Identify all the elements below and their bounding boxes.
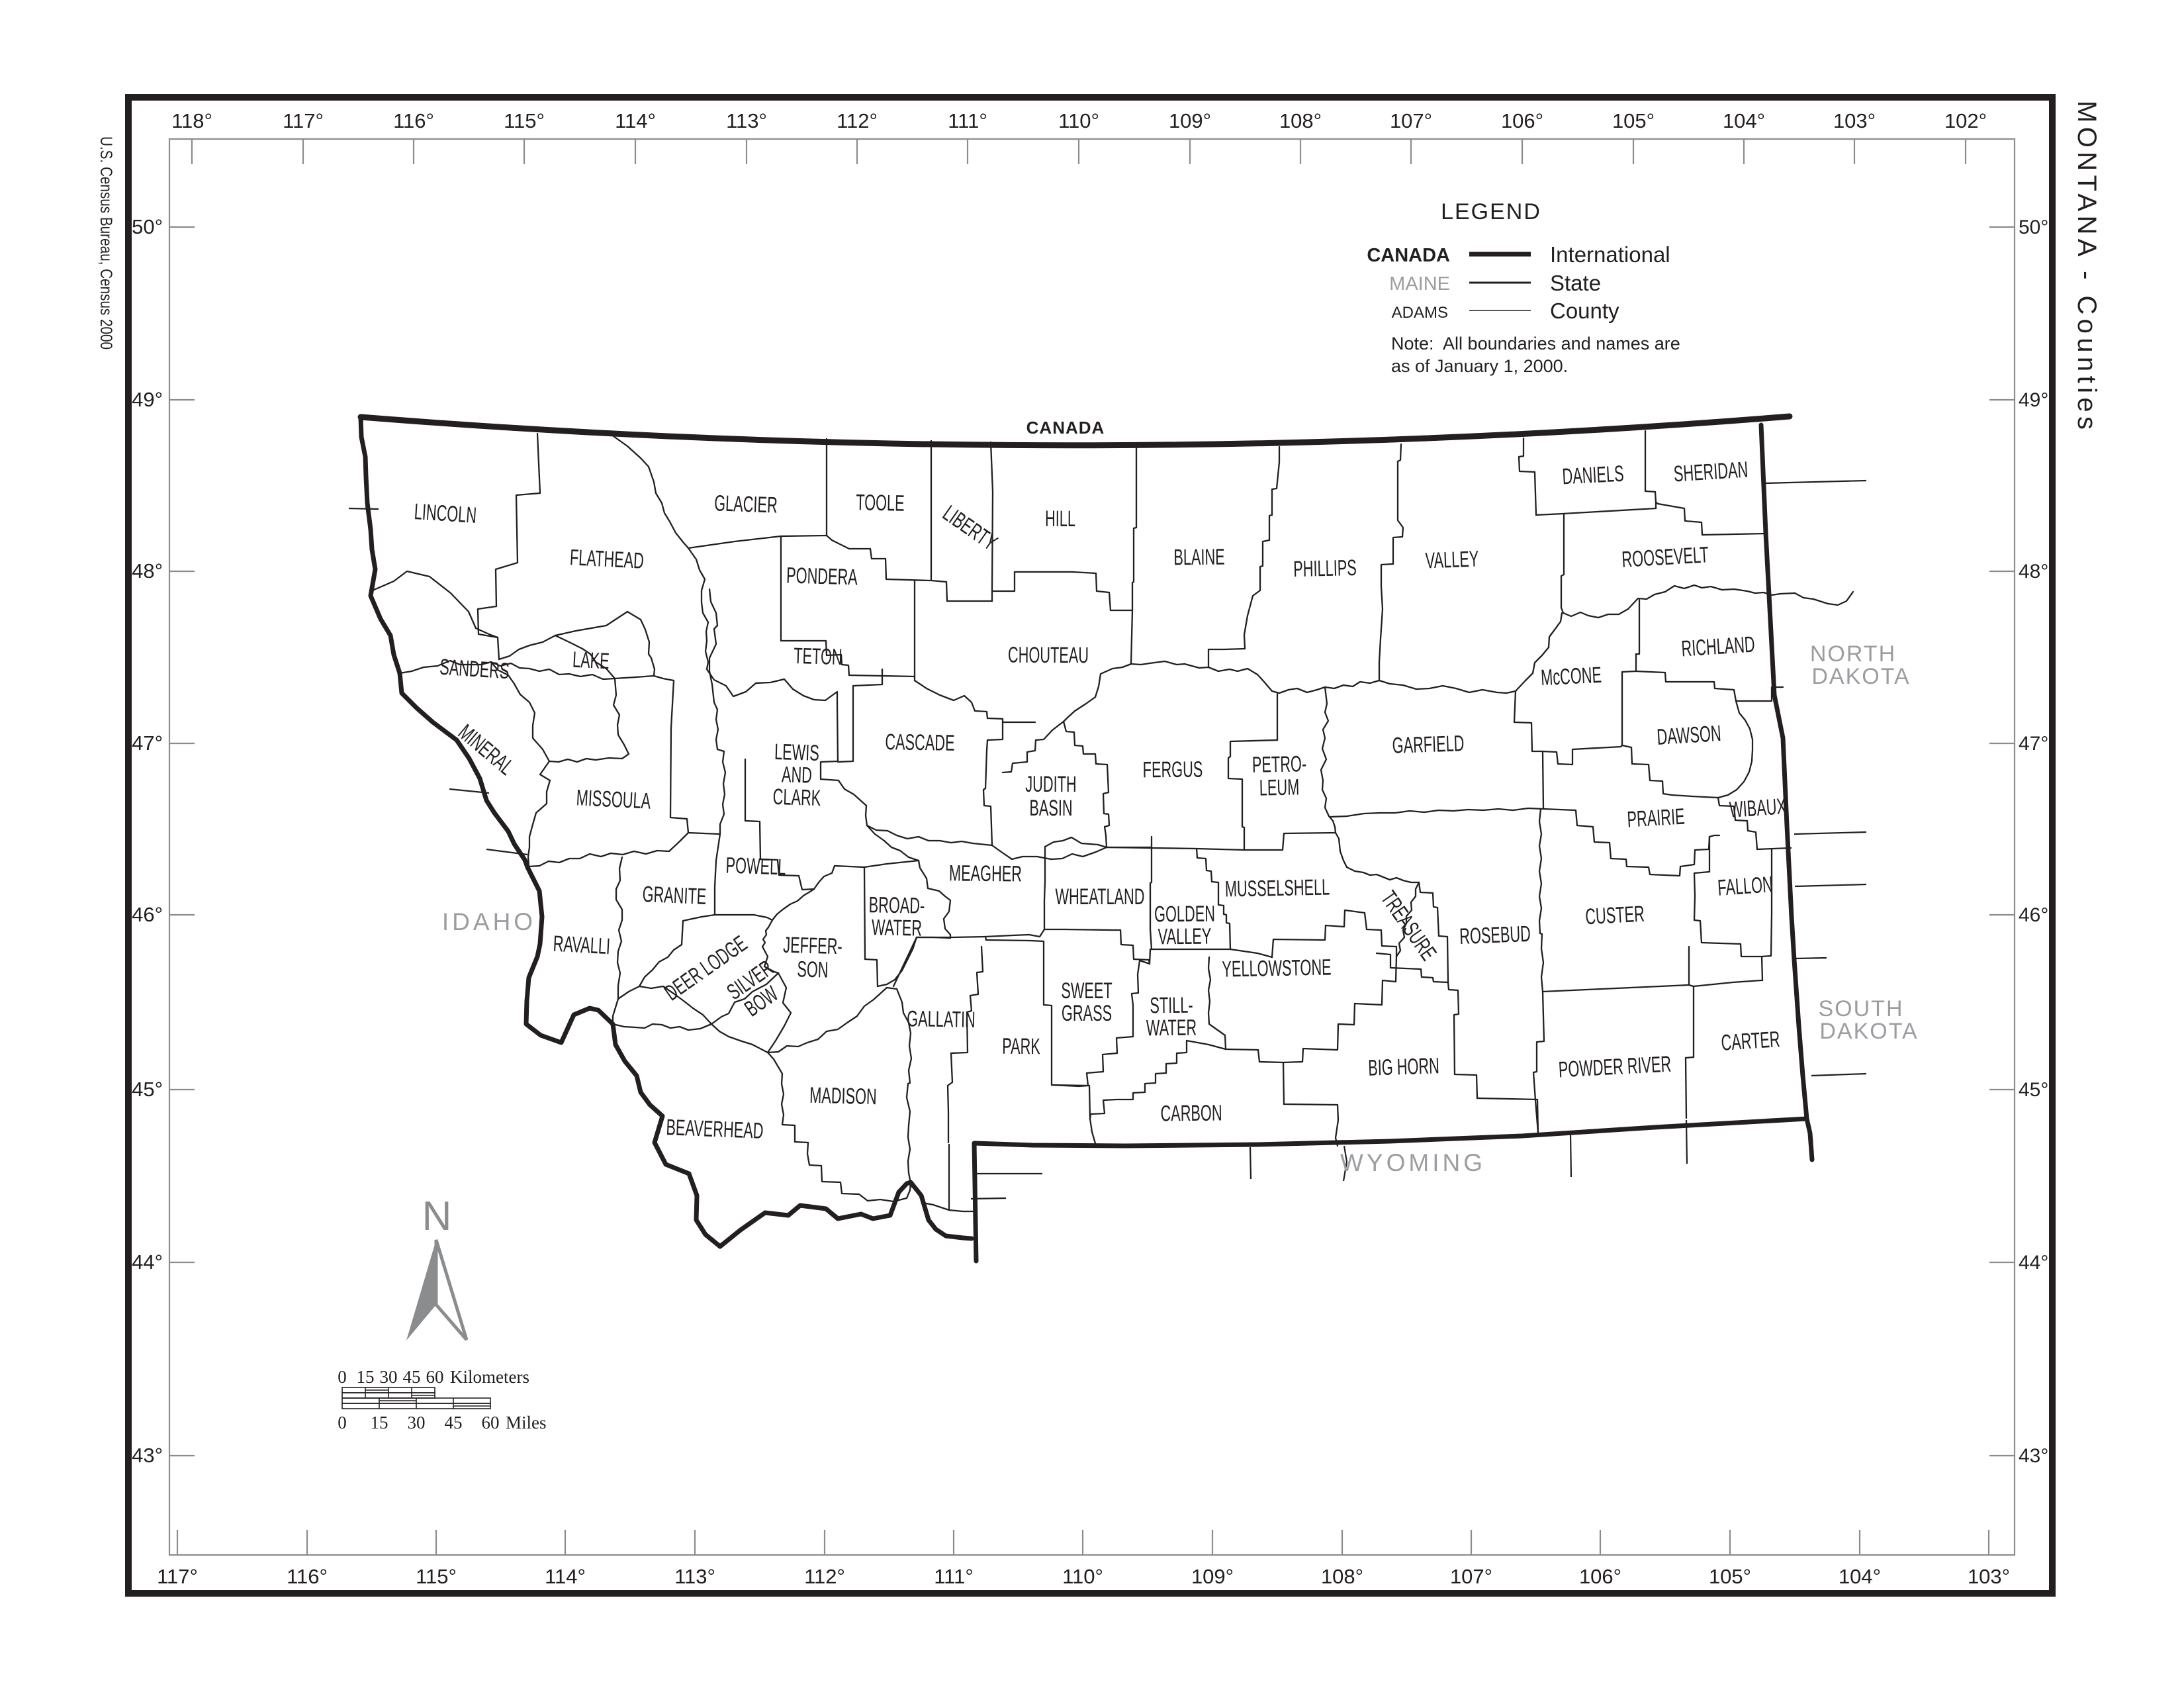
- svg-text:WIBAUX: WIBAUX: [1729, 794, 1787, 823]
- svg-text:DAKOTA: DAKOTA: [1811, 664, 1910, 689]
- svg-text:JUDITH: JUDITH: [1025, 772, 1076, 797]
- svg-text:SOUTH: SOUTH: [1819, 996, 1904, 1021]
- svg-text:50°: 50°: [2019, 216, 2048, 238]
- svg-text:BIG HORN: BIG HORN: [1368, 1054, 1440, 1081]
- svg-text:STILL-: STILL-: [1150, 993, 1193, 1019]
- svg-text:BEAVERHEAD: BEAVERHEAD: [666, 1115, 764, 1144]
- svg-text:Kilometers: Kilometers: [450, 1367, 529, 1387]
- svg-text:GRANITE: GRANITE: [642, 882, 707, 910]
- svg-text:WYOMING: WYOMING: [1340, 1149, 1486, 1176]
- svg-text:WHEATLAND: WHEATLAND: [1056, 884, 1145, 910]
- svg-text:60: 60: [426, 1367, 444, 1387]
- svg-text:43°: 43°: [2019, 1445, 2048, 1467]
- svg-text:McCONE: McCONE: [1540, 663, 1602, 691]
- svg-text:International: International: [1550, 242, 1670, 267]
- svg-text:0: 0: [338, 1367, 347, 1387]
- svg-text:WATER: WATER: [1146, 1015, 1197, 1041]
- svg-text:30: 30: [408, 1413, 426, 1432]
- svg-text:CLARK: CLARK: [772, 784, 821, 811]
- svg-text:MEAGHER: MEAGHER: [949, 861, 1022, 887]
- svg-text:IDAHO: IDAHO: [442, 908, 536, 935]
- svg-text:47°: 47°: [132, 731, 163, 755]
- svg-text:DAWSON: DAWSON: [1656, 721, 1721, 750]
- svg-text:108°: 108°: [1321, 1565, 1363, 1588]
- svg-text:107°: 107°: [1450, 1565, 1492, 1588]
- svg-text:48°: 48°: [2019, 561, 2048, 583]
- svg-text:BASIN: BASIN: [1029, 796, 1072, 821]
- svg-text:ADAMS: ADAMS: [1392, 304, 1448, 322]
- svg-text:48°: 48°: [132, 559, 163, 583]
- svg-text:112°: 112°: [837, 109, 878, 132]
- svg-text:105°: 105°: [1709, 1565, 1751, 1588]
- svg-text:TOOLE: TOOLE: [856, 490, 905, 516]
- svg-text:109°: 109°: [1169, 109, 1211, 132]
- svg-text:47°: 47°: [2019, 733, 2048, 755]
- svg-text:109°: 109°: [1191, 1565, 1234, 1588]
- svg-text:LAKE: LAKE: [572, 647, 610, 675]
- svg-text:RAVALLI: RAVALLI: [553, 931, 611, 960]
- svg-text:State: State: [1550, 271, 1601, 295]
- svg-text:15: 15: [371, 1413, 388, 1432]
- svg-text:MAINE: MAINE: [1389, 273, 1450, 295]
- svg-text:DANIELS: DANIELS: [1562, 461, 1625, 490]
- svg-text:44°: 44°: [132, 1250, 163, 1274]
- svg-text:15: 15: [357, 1367, 375, 1387]
- svg-text:PARK: PARK: [1002, 1034, 1040, 1060]
- svg-text:CHOUTEAU: CHOUTEAU: [1008, 643, 1089, 669]
- svg-text:TETON: TETON: [794, 643, 842, 670]
- svg-text:MUSSELSHELL: MUSSELSHELL: [1224, 875, 1330, 902]
- svg-text:RICHLAND: RICHLAND: [1680, 632, 1755, 662]
- svg-text:GALLATIN: GALLATIN: [907, 1006, 976, 1033]
- svg-text:FERGUS: FERGUS: [1143, 757, 1203, 783]
- svg-text:SHERIDAN: SHERIDAN: [1673, 457, 1749, 487]
- svg-text:114°: 114°: [545, 1565, 586, 1588]
- svg-text:113°: 113°: [726, 109, 767, 132]
- svg-text:110°: 110°: [1062, 1565, 1103, 1588]
- svg-text:45°: 45°: [2019, 1079, 2048, 1101]
- svg-text:PRAIRIE: PRAIRIE: [1627, 804, 1686, 833]
- svg-text:as of January 1, 2000.: as of January 1, 2000.: [1391, 356, 1568, 376]
- svg-text:ROSEBUD: ROSEBUD: [1459, 921, 1531, 949]
- svg-text:POWELL: POWELL: [725, 853, 786, 880]
- svg-text:108°: 108°: [1279, 109, 1322, 132]
- svg-text:CANADA: CANADA: [1026, 418, 1105, 438]
- svg-text:PONDERA: PONDERA: [786, 563, 858, 590]
- svg-text:HILL: HILL: [1045, 506, 1075, 532]
- svg-text:ROOSEVELT: ROOSEVELT: [1621, 542, 1709, 573]
- svg-text:116°: 116°: [287, 1565, 328, 1588]
- svg-text:MISSOULA: MISSOULA: [576, 785, 651, 814]
- svg-text:MADISON: MADISON: [809, 1083, 877, 1110]
- svg-text:103°: 103°: [1833, 109, 1876, 132]
- svg-text:YELLOWSTONE: YELLOWSTONE: [1222, 955, 1332, 982]
- svg-text:GLACIER: GLACIER: [714, 491, 778, 518]
- svg-text:117°: 117°: [283, 109, 324, 132]
- svg-text:106°: 106°: [1579, 1565, 1621, 1588]
- svg-text:U.S. Census Bureau, Census 200: U.S. Census Bureau, Census 2000: [97, 136, 115, 350]
- svg-text:49°: 49°: [132, 388, 163, 411]
- svg-text:VALLEY: VALLEY: [1425, 547, 1479, 574]
- svg-text:CARTER: CARTER: [1720, 1027, 1780, 1056]
- svg-text:107°: 107°: [1390, 109, 1432, 132]
- svg-text:111°: 111°: [934, 1565, 974, 1588]
- svg-text:104°: 104°: [1723, 109, 1765, 132]
- svg-text:50°: 50°: [132, 215, 163, 238]
- svg-text:116°: 116°: [393, 109, 434, 132]
- svg-text:112°: 112°: [804, 1565, 845, 1588]
- svg-text:30: 30: [380, 1367, 398, 1387]
- svg-text:45: 45: [403, 1367, 421, 1387]
- svg-text:CASCADE: CASCADE: [885, 729, 955, 756]
- svg-text:SANDERS: SANDERS: [439, 655, 510, 684]
- svg-text:CUSTER: CUSTER: [1584, 902, 1645, 930]
- svg-text:Note: All boundaries and name: Note: All boundaries and names are: [1391, 334, 1680, 353]
- svg-text:LINCOLN: LINCOLN: [414, 499, 478, 528]
- svg-text:0: 0: [338, 1413, 347, 1432]
- svg-text:GRASS: GRASS: [1062, 1001, 1112, 1026]
- svg-text:LEUM: LEUM: [1259, 775, 1299, 801]
- svg-text:BLAINE: BLAINE: [1173, 545, 1225, 571]
- svg-text:LEGEND: LEGEND: [1441, 199, 1541, 224]
- svg-text:115°: 115°: [416, 1565, 457, 1588]
- svg-text:43°: 43°: [132, 1444, 163, 1467]
- svg-text:Miles: Miles: [506, 1413, 547, 1432]
- svg-text:114°: 114°: [615, 109, 656, 132]
- svg-text:46°: 46°: [132, 903, 163, 926]
- svg-text:60: 60: [482, 1413, 500, 1432]
- svg-text:118°: 118°: [171, 109, 212, 132]
- svg-text:WATER: WATER: [872, 915, 923, 941]
- svg-text:SON: SON: [797, 957, 829, 983]
- svg-text:103°: 103°: [1968, 1565, 2010, 1588]
- svg-text:CANADA: CANADA: [1367, 245, 1450, 266]
- svg-text:PETRO-: PETRO-: [1252, 751, 1307, 778]
- svg-text:N: N: [422, 1194, 452, 1239]
- svg-text:104°: 104°: [1839, 1565, 1881, 1588]
- svg-text:JEFFER-: JEFFER-: [783, 933, 842, 960]
- svg-text:111°: 111°: [948, 109, 987, 132]
- svg-text:105°: 105°: [1612, 109, 1655, 132]
- svg-text:117°: 117°: [157, 1565, 198, 1588]
- svg-text:102°: 102°: [1944, 109, 1987, 132]
- svg-text:46°: 46°: [2019, 904, 2048, 926]
- svg-text:DAKOTA: DAKOTA: [1819, 1019, 1918, 1044]
- svg-text:NORTH: NORTH: [1810, 641, 1896, 667]
- svg-text:GARFIELD: GARFIELD: [1392, 731, 1465, 759]
- svg-text:GOLDEN: GOLDEN: [1154, 902, 1215, 927]
- svg-text:106°: 106°: [1501, 109, 1543, 132]
- svg-text:113°: 113°: [674, 1565, 715, 1588]
- svg-text:PHILLIPS: PHILLIPS: [1293, 555, 1357, 582]
- svg-text:VALLEY: VALLEY: [1158, 924, 1212, 950]
- svg-text:45°: 45°: [132, 1078, 163, 1101]
- svg-text:45: 45: [445, 1413, 463, 1432]
- svg-text:FALLON: FALLON: [1717, 872, 1774, 901]
- svg-text:SWEET: SWEET: [1061, 978, 1112, 1004]
- svg-text:CARBON: CARBON: [1160, 1101, 1222, 1127]
- svg-text:FLATHEAD: FLATHEAD: [569, 545, 645, 575]
- svg-text:110°: 110°: [1058, 109, 1099, 132]
- svg-text:49°: 49°: [2019, 389, 2048, 411]
- svg-text:115°: 115°: [504, 109, 545, 132]
- svg-text:County: County: [1550, 299, 1619, 323]
- svg-text:44°: 44°: [2019, 1252, 2048, 1274]
